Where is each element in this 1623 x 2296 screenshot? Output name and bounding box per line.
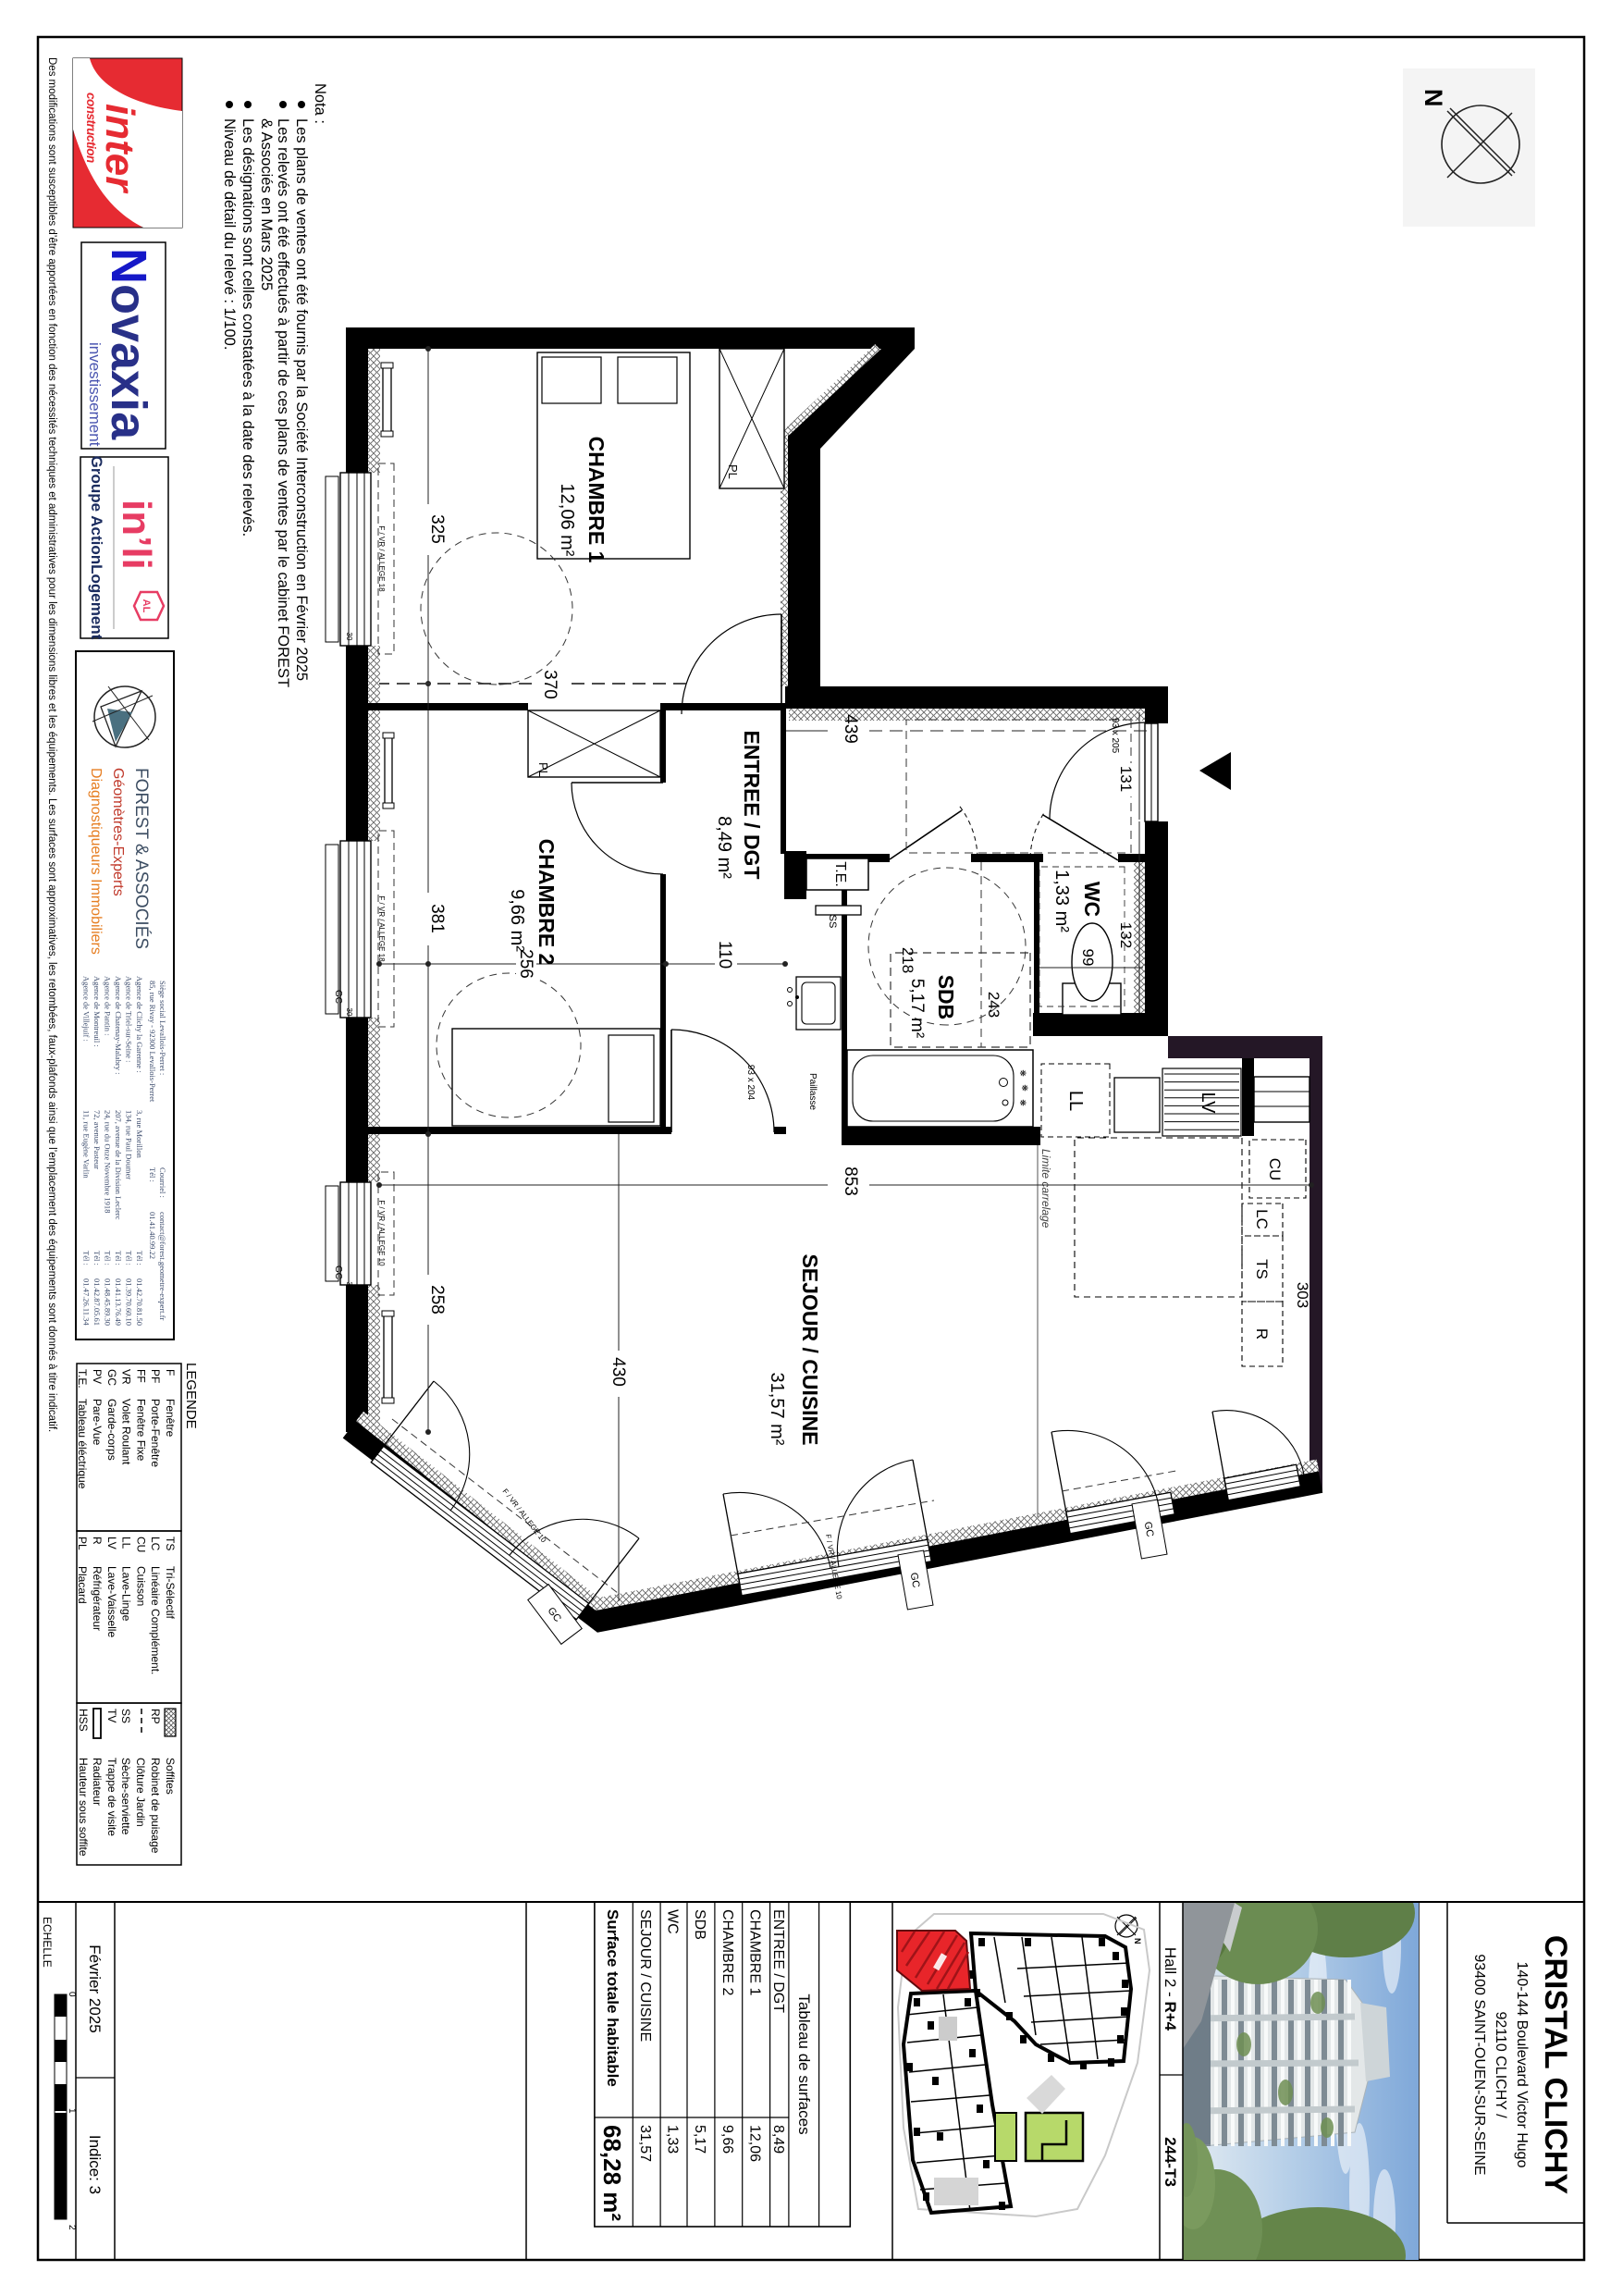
svg-text:TV: TV <box>105 1709 118 1722</box>
svg-text:Limite carrelage: Limite carrelage <box>1039 1149 1052 1228</box>
svg-text:PL: PL <box>726 464 740 479</box>
svg-text:WC: WC <box>1080 882 1104 917</box>
svg-text:370: 370 <box>540 670 559 699</box>
svg-text:F / VR / ALLEGE 10: F / VR / ALLEGE 10 <box>377 1200 386 1266</box>
svg-text:430: 430 <box>609 1357 628 1387</box>
svg-text:F / VR / ALLEGE 18: F / VR / ALLEGE 18 <box>377 895 386 962</box>
svg-text:TS: TS <box>164 1537 177 1550</box>
svg-text:LV: LV <box>1198 1092 1218 1115</box>
svg-text:T.E.: T.E. <box>832 861 848 887</box>
svg-text:RP: RP <box>149 1709 162 1724</box>
svg-text:❋: ❋ <box>1020 1084 1029 1092</box>
svg-text:SS: SS <box>119 1709 132 1723</box>
svg-text:investissement: investissement <box>86 342 104 447</box>
svg-text:439: 439 <box>841 714 860 744</box>
svg-text:131: 131 <box>1117 766 1135 792</box>
svg-text:LEGENDE: LEGENDE <box>183 1363 199 1429</box>
svg-text:Des modifications sont suscept: Des modifications sont susceptibles d’êt… <box>46 57 57 1432</box>
svg-text:132: 132 <box>1117 922 1135 948</box>
svg-text:5,17 m²: 5,17 m² <box>907 979 927 1038</box>
svg-text:N: N <box>1133 1938 1142 1944</box>
svg-text:Cuisson: Cuisson <box>134 1566 147 1606</box>
svg-text:Clôture Jardin: Clôture Jardin <box>134 1758 147 1827</box>
svg-text:& Associés en Mars 2025: & Associés en Mars 2025 <box>258 118 275 290</box>
svg-text:Agence de Clichy la Garenne :: Agence de Clichy la Garenne : <box>135 976 144 1073</box>
svg-text:GC: GC <box>105 1369 118 1386</box>
svg-text:Garde-corps: Garde-corps <box>105 1399 118 1461</box>
svg-text:PF: PF <box>149 1369 162 1383</box>
svg-text:Indice: 3: Indice: 3 <box>86 2135 104 2194</box>
svg-text:Fenêtre: Fenêtre <box>164 1399 177 1438</box>
svg-text:8,49: 8,49 <box>770 2125 786 2154</box>
svg-text:Tél :: Tél : <box>135 1251 144 1265</box>
svg-text:Tél :: Tél : <box>114 1251 123 1265</box>
svg-text:Agence de Chatenay-Malabry :: Agence de Chatenay-Malabry : <box>114 976 123 1074</box>
svg-text:140-144 Boulevard Victor Hugo: 140-144 Boulevard Victor Hugo <box>1514 1962 1530 2168</box>
svg-text:Niveau de détail du relevé : 1: Niveau de détail du relevé : 1/100. <box>221 118 238 350</box>
svg-text:72, avenue Pasteur: 72, avenue Pasteur <box>92 1110 102 1169</box>
svg-text:SDB: SDB <box>934 975 958 1020</box>
svg-text:Paillasse: Paillasse <box>807 1073 818 1110</box>
svg-text:381: 381 <box>427 904 447 933</box>
svg-text:01.42.87.05.61: 01.42.87.05.61 <box>92 1278 102 1326</box>
svg-text:F: F <box>164 1369 177 1376</box>
svg-text:Robinet de puisage: Robinet de puisage <box>149 1758 162 1854</box>
svg-text:853: 853 <box>841 1167 860 1196</box>
svg-text:Les plans de ventes ont été fo: Les plans de ventes ont été fournis par … <box>293 118 310 681</box>
svg-text:244-T3: 244-T3 <box>1162 2137 1179 2187</box>
svg-text:Placard: Placard <box>76 1566 89 1604</box>
svg-text:12,06 m²: 12,06 m² <box>557 484 577 557</box>
svg-text:30: 30 <box>345 1008 353 1017</box>
svg-text:93 x 205: 93 x 205 <box>1110 718 1120 754</box>
svg-text:Porte-Fenêtre: Porte-Fenêtre <box>149 1399 162 1467</box>
svg-text:Géomètres-Experts: Géomètres-Experts <box>110 768 126 896</box>
svg-text:1: 1 <box>67 2108 77 2114</box>
svg-text:TS: TS <box>1253 1259 1271 1279</box>
svg-text:ENTREE / DGT: ENTREE / DGT <box>770 1909 786 2013</box>
svg-text:GC: GC <box>333 990 343 1004</box>
svg-text:01.41.40.99.22: 01.41.40.99.22 <box>148 1212 157 1259</box>
svg-text:Les désignations sont celles c: Les désignations sont celles constatées … <box>240 118 256 537</box>
svg-text:30: 30 <box>345 633 353 641</box>
svg-text:243: 243 <box>985 992 1002 1018</box>
svg-text:99: 99 <box>1079 949 1097 967</box>
svg-text:FOREST & ASSOCIÉS: FOREST & ASSOCIÉS <box>131 768 151 949</box>
svg-text:WC: WC <box>665 1909 681 1934</box>
svg-text:93 x 204: 93 x 204 <box>745 1065 756 1101</box>
svg-text:VR: VR <box>120 1369 133 1385</box>
svg-text:Tableau éléctrique: Tableau éléctrique <box>76 1399 89 1489</box>
svg-text:HSS: HSS <box>77 1709 90 1732</box>
svg-text:01.41.13.76.49: 01.41.13.76.49 <box>114 1278 123 1326</box>
svg-text:325: 325 <box>427 514 447 544</box>
svg-text:ECHELLE: ECHELLE <box>41 1917 54 1968</box>
svg-text:31,57 m²: 31,57 m² <box>767 1373 787 1446</box>
svg-text:Siège social Levallois-Perret: Siège social Levallois-Perret : <box>158 981 167 1075</box>
svg-text:01.39.70.60.10: 01.39.70.60.10 <box>125 1278 134 1326</box>
svg-text:Tél :: Tél : <box>82 1251 92 1265</box>
svg-text:Radiateur: Radiateur <box>91 1758 104 1806</box>
svg-text:Novaxia: Novaxia <box>101 248 156 440</box>
svg-text:PV: PV <box>91 1369 104 1384</box>
svg-text:31,57: 31,57 <box>637 2125 653 2162</box>
svg-text:GC: GC <box>333 1265 343 1279</box>
svg-text:SEJOUR / CUISINE: SEJOUR / CUISINE <box>798 1253 822 1445</box>
svg-text:134, rue Paul Doumer: 134, rue Paul Doumer <box>125 1110 134 1179</box>
svg-text:Sèche-serviette: Sèche-serviette <box>119 1758 132 1835</box>
svg-text:68,28 m²: 68,28 m² <box>598 2125 626 2221</box>
svg-text:Diagnostiqueurs Immobiliers: Diagnostiqueurs Immobiliers <box>88 768 104 955</box>
svg-text:CHAMBRE 1: CHAMBRE 1 <box>584 437 609 563</box>
svg-text:PL: PL <box>76 1537 89 1550</box>
svg-text:LC: LC <box>149 1537 162 1551</box>
svg-text:LC: LC <box>1253 1209 1271 1229</box>
svg-text:Tél :: Tél : <box>104 1251 113 1265</box>
svg-text:Surface totale habitable: Surface totale habitable <box>604 1909 621 2087</box>
svg-text:in’li: in’li <box>114 500 159 570</box>
svg-text:Février 2025: Février 2025 <box>86 1944 104 2032</box>
svg-text:CU: CU <box>1266 1158 1284 1181</box>
svg-text:inter: inter <box>97 104 142 194</box>
svg-text:SDB: SDB <box>692 1909 707 1940</box>
svg-text:Soffites: Soffites <box>164 1758 177 1795</box>
svg-text:Les relevés ont été effectués: Les relevés ont été effectués à partir d… <box>275 118 291 687</box>
svg-text:construction: construction <box>84 93 98 163</box>
svg-text:PL: PL <box>536 762 550 777</box>
svg-text:Courriel :: Courriel : <box>158 1167 167 1198</box>
svg-text:Tél :: Tél : <box>125 1251 134 1265</box>
svg-text:256: 256 <box>516 949 535 979</box>
svg-text:Agence de Villejuif :: Agence de Villejuif : <box>82 976 92 1042</box>
svg-text:LL: LL <box>1065 1091 1086 1111</box>
svg-text:AL: AL <box>141 599 152 613</box>
svg-text:SEJOUR / CUISINE: SEJOUR / CUISINE <box>637 1909 653 2042</box>
svg-text:Agence de Montreuil :: Agence de Montreuil : <box>92 976 102 1047</box>
svg-text:24, rue du Onze Novembre 1918: 24, rue du Onze Novembre 1918 <box>104 1110 113 1213</box>
svg-text:2: 2 <box>67 2225 77 2230</box>
svg-text:8,49 m²: 8,49 m² <box>714 816 734 879</box>
svg-text:contact@forest.geometre-expert: contact@forest.geometre-expert.fr <box>158 1212 167 1320</box>
svg-text:207, avenue de la Division Lec: 207, avenue de la Division Leclerc <box>114 1110 123 1220</box>
svg-text:CHAMBRE 1: CHAMBRE 1 <box>747 1909 763 1995</box>
svg-text:Agence de Pantin :: Agence de Pantin : <box>104 976 113 1035</box>
svg-text:0: 0 <box>67 1992 77 1997</box>
svg-text:N: N <box>1420 89 1447 107</box>
svg-text:1,33 m²: 1,33 m² <box>1051 870 1072 932</box>
svg-text:❋: ❋ <box>1018 1099 1027 1106</box>
svg-text:Linéaire Complément.: Linéaire Complément. <box>149 1566 162 1674</box>
svg-text:CRISTAL CLICHY: CRISTAL CLICHY <box>1538 1935 1573 2195</box>
svg-text:Agence de Triel-sur-Seine :: Agence de Triel-sur-Seine : <box>125 976 134 1063</box>
svg-text:11, rue Eugène Varlin: 11, rue Eugène Varlin <box>82 1110 92 1179</box>
svg-text:ENTREE / DGT: ENTREE / DGT <box>740 730 764 879</box>
svg-text:9,66 m²: 9,66 m² <box>507 889 527 952</box>
svg-text:CHAMBRE 2: CHAMBRE 2 <box>535 839 559 966</box>
svg-text:12,06: 12,06 <box>747 2125 763 2162</box>
svg-text:Nota :: Nota : <box>312 83 328 124</box>
svg-text:R: R <box>1253 1328 1271 1339</box>
svg-text:F / VR / ALLEGE 18: F / VR / ALLEGE 18 <box>377 525 386 592</box>
svg-text:218: 218 <box>899 947 916 973</box>
svg-text:9,66: 9,66 <box>719 2125 735 2154</box>
svg-text:Hauteur sous soffite: Hauteur sous soffite <box>77 1758 90 1857</box>
svg-text:Trappe de visite: Trappe de visite <box>105 1758 118 1836</box>
svg-text:92110 CLICHY /: 92110 CLICHY / <box>1493 2011 1508 2118</box>
svg-text:01.48.45.89.30: 01.48.45.89.30 <box>104 1278 113 1326</box>
svg-text:Réfrigérateur: Réfrigérateur <box>91 1566 104 1631</box>
svg-text:Tableau de surfaces: Tableau de surfaces <box>795 1994 813 2134</box>
svg-text:SS: SS <box>827 915 838 929</box>
svg-text:3, rue Morillon: 3, rue Morillon <box>135 1110 144 1158</box>
svg-text:❋: ❋ <box>1018 1069 1027 1077</box>
svg-text:FF: FF <box>134 1369 147 1383</box>
svg-text:Lave-Vaisselle: Lave-Vaisselle <box>105 1566 118 1637</box>
svg-text:R: R <box>91 1537 104 1545</box>
svg-text:Groupe ActionLogement: Groupe ActionLogement <box>88 456 105 640</box>
svg-text:T.E.: T.E. <box>76 1369 89 1389</box>
svg-text:Volet Roulant: Volet Roulant <box>120 1399 133 1465</box>
svg-text:258: 258 <box>427 1285 447 1315</box>
svg-text:Fenêtre Fixe: Fenêtre Fixe <box>134 1399 147 1462</box>
svg-text:Hall 2 - R+4: Hall 2 - R+4 <box>1162 1947 1179 2031</box>
svg-text:303: 303 <box>1294 1282 1311 1308</box>
svg-text:1,33: 1,33 <box>665 2125 681 2154</box>
svg-text:CHAMBRE 2: CHAMBRE 2 <box>719 1909 735 1995</box>
svg-text:30: 30 <box>345 1282 353 1290</box>
svg-text:LV: LV <box>105 1537 118 1549</box>
svg-text:01.42.70.81.50: 01.42.70.81.50 <box>135 1278 144 1326</box>
svg-text:CU: CU <box>134 1537 147 1552</box>
svg-text:LL: LL <box>120 1537 133 1549</box>
svg-text:Tél :: Tél : <box>92 1251 102 1265</box>
svg-text:110: 110 <box>715 941 734 969</box>
svg-text:01.47.26.11.34: 01.47.26.11.34 <box>82 1278 92 1326</box>
svg-text:Pare-Vue: Pare-Vue <box>91 1399 104 1446</box>
svg-text:Tél :: Tél : <box>148 1167 157 1182</box>
svg-text:Tri-Sélectif: Tri-Sélectif <box>164 1566 177 1620</box>
svg-text:5,17: 5,17 <box>692 2125 707 2154</box>
svg-text:93400 SAINT-OUEN-SUR-SEINE: 93400 SAINT-OUEN-SUR-SEINE <box>1471 1954 1487 2175</box>
svg-text:Lave-Linge: Lave-Linge <box>120 1566 133 1622</box>
svg-text:85, rue Rivay - 92300 Levalloi: 85, rue Rivay - 92300 Levallois-Perret <box>148 981 157 1103</box>
